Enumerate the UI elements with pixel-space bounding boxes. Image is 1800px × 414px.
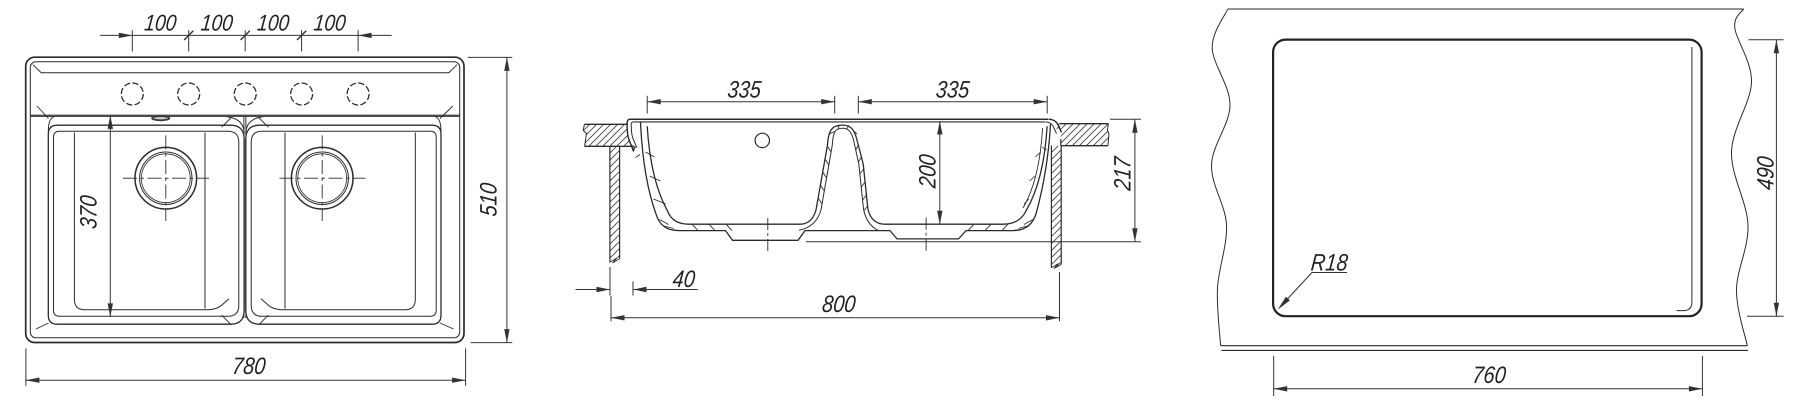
svg-text:335: 335: [726, 76, 763, 103]
svg-text:335: 335: [935, 76, 972, 103]
svg-text:760: 760: [1471, 361, 1508, 388]
svg-text:100: 100: [256, 11, 291, 36]
svg-text:100: 100: [143, 11, 178, 36]
svg-text:R18: R18: [1310, 249, 1350, 276]
svg-text:510: 510: [475, 181, 502, 218]
svg-text:100: 100: [200, 11, 235, 36]
svg-text:200: 200: [914, 152, 941, 190]
svg-text:800: 800: [821, 290, 858, 317]
svg-text:217: 217: [1109, 155, 1136, 193]
svg-text:370: 370: [75, 193, 102, 230]
svg-text:490: 490: [1752, 154, 1779, 191]
svg-text:100: 100: [313, 11, 348, 36]
svg-text:40: 40: [671, 266, 697, 293]
svg-text:780: 780: [231, 352, 268, 379]
